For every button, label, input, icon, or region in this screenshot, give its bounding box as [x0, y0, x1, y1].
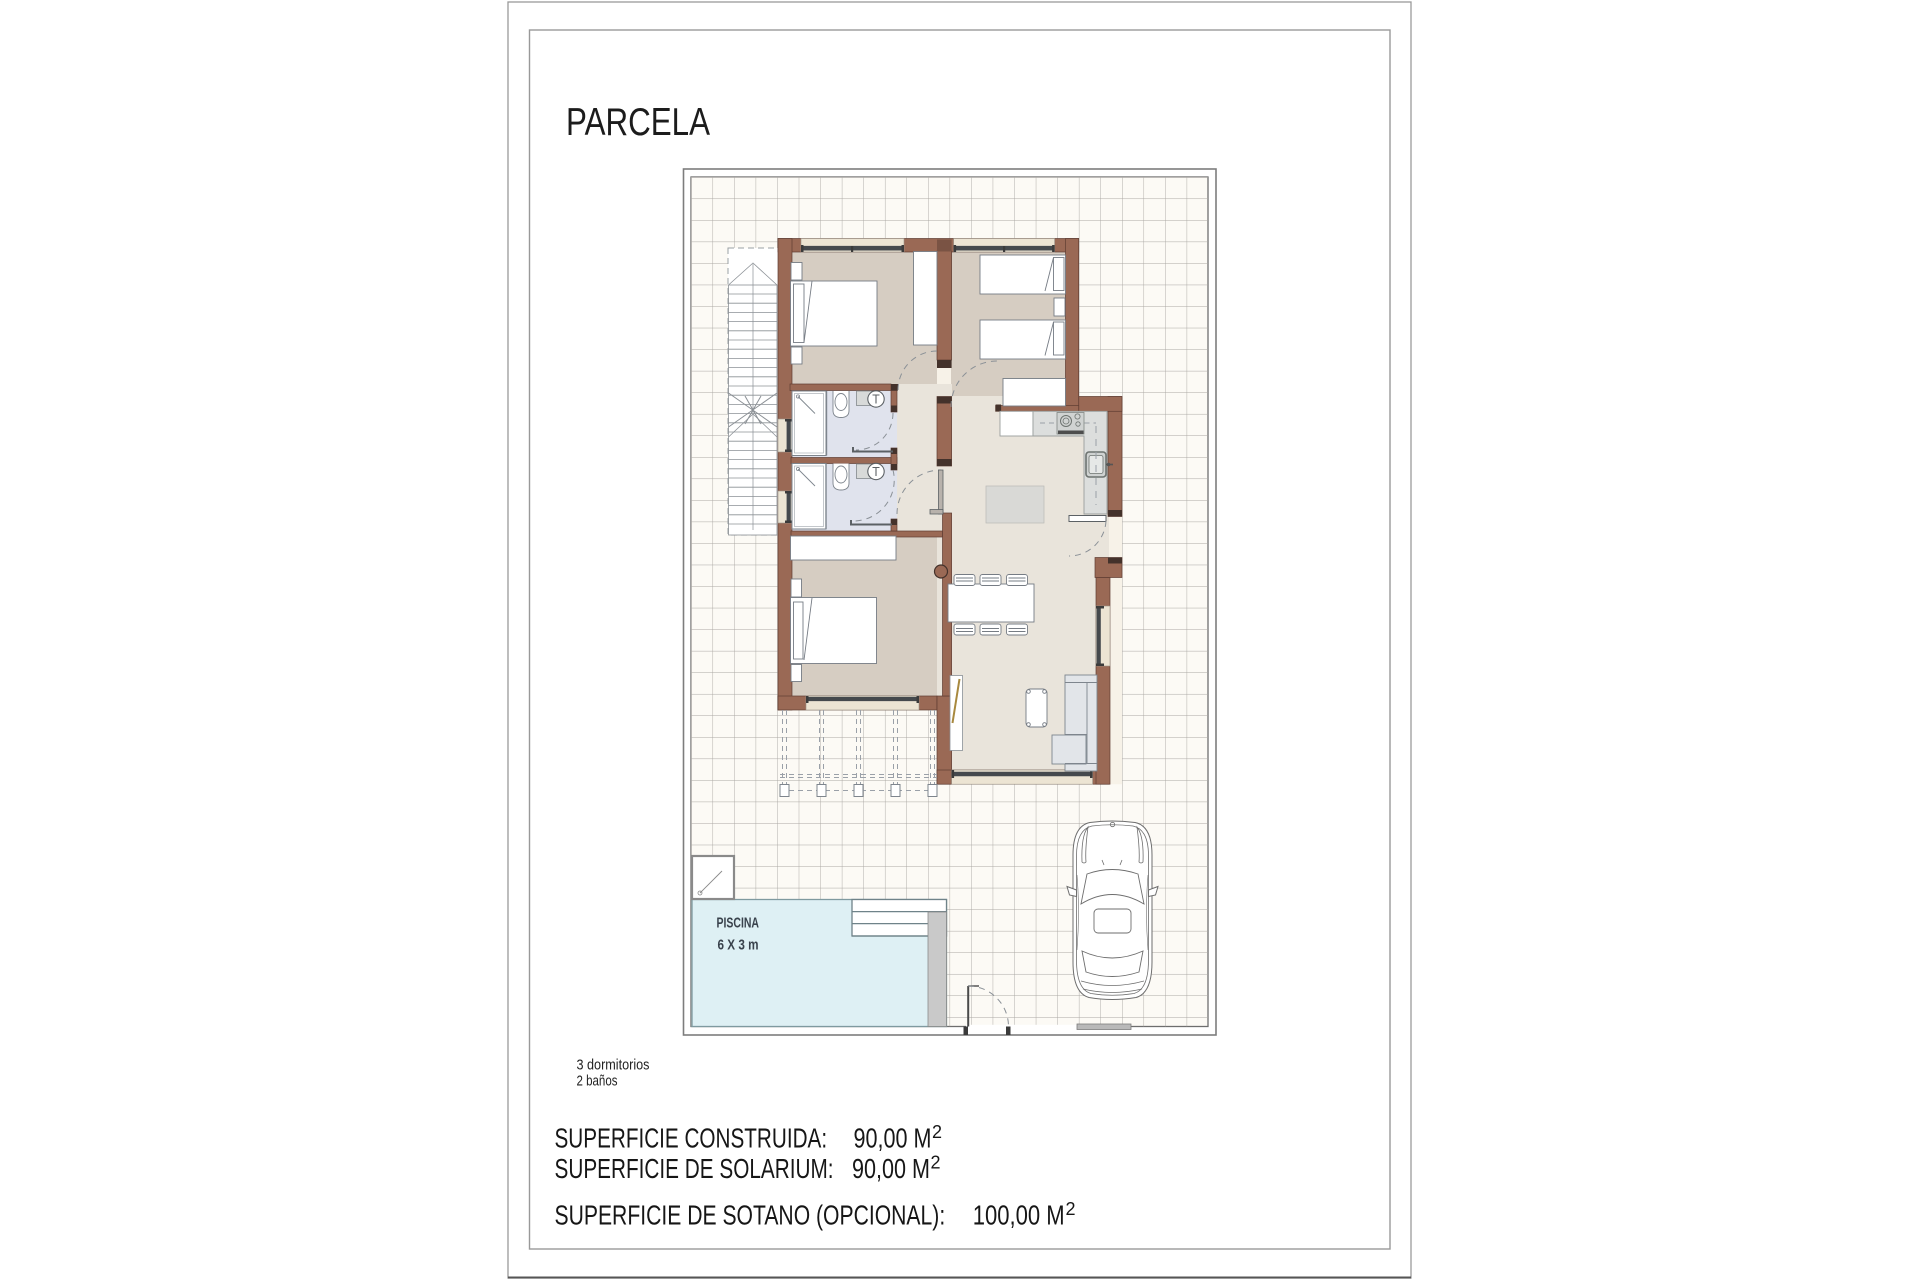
svg-text:2 baños: 2 baños	[577, 1073, 618, 1090]
svg-text:90,00 M: 90,00 M	[852, 1153, 930, 1184]
svg-text:90,00 M: 90,00 M	[854, 1123, 932, 1154]
svg-text:PISCINA: PISCINA	[717, 915, 760, 932]
svg-text:6 X 3 m: 6 X 3 m	[718, 937, 759, 954]
svg-text:SUPERFICIE DE SOLARIUM:: SUPERFICIE DE SOLARIUM:	[555, 1153, 834, 1184]
svg-text:2: 2	[932, 1122, 942, 1142]
svg-text:2: 2	[931, 1153, 941, 1173]
svg-text:3 dormitorios: 3 dormitorios	[577, 1057, 650, 1074]
svg-text:PARCELA: PARCELA	[566, 101, 710, 144]
svg-text:SUPERFICIE CONSTRUIDA:: SUPERFICIE CONSTRUIDA:	[555, 1123, 828, 1154]
svg-text:100,00 M: 100,00 M	[973, 1200, 1065, 1231]
svg-text:2: 2	[1066, 1199, 1076, 1219]
svg-text:SUPERFICIE DE SOTANO (OPCIONAL: SUPERFICIE DE SOTANO (OPCIONAL):	[555, 1200, 946, 1231]
